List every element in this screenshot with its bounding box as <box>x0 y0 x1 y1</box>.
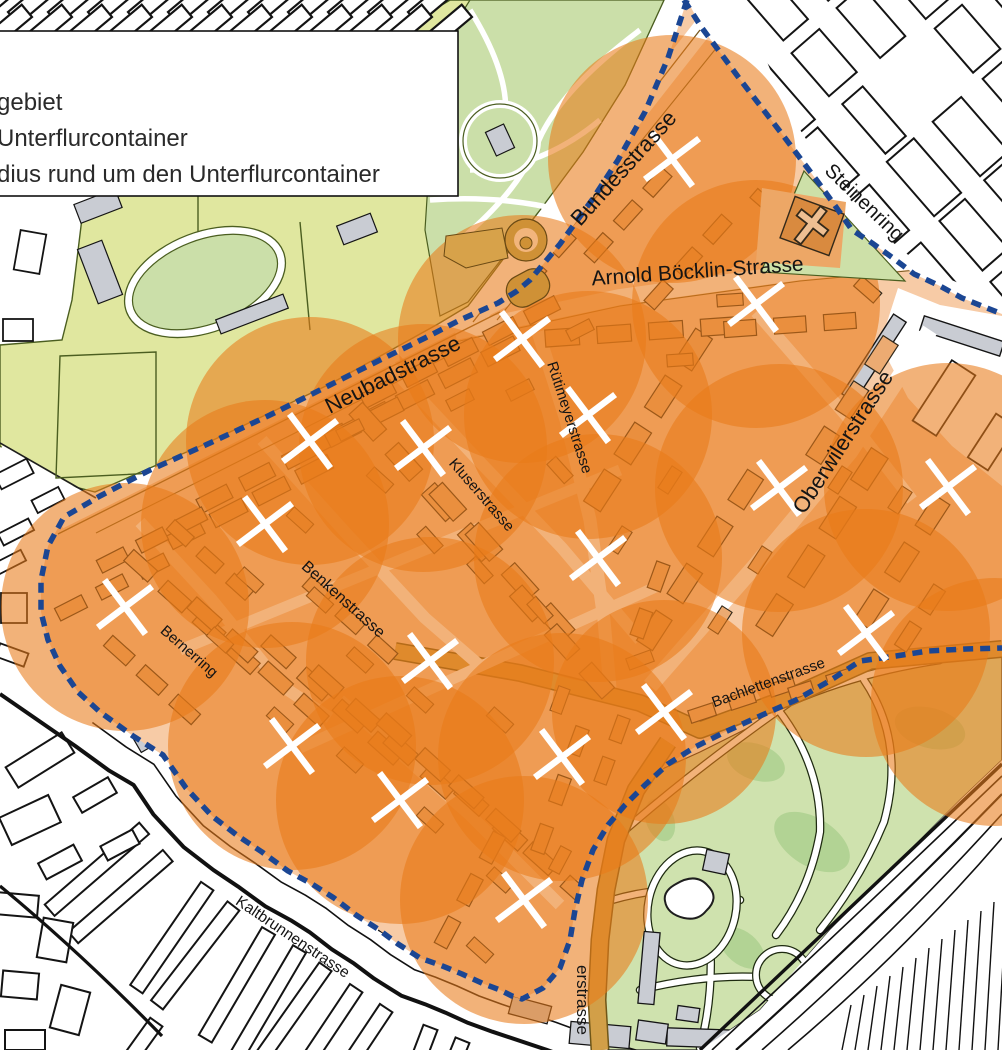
svg-text:dius rund um den Unterflurcont: dius rund um den Unterflurcontainer <box>0 161 380 188</box>
svg-text:erstrasse: erstrasse <box>573 965 592 1035</box>
svg-text:Unterflurcontainer: Unterflurcontainer <box>0 125 188 152</box>
svg-text:gebiet: gebiet <box>0 89 63 116</box>
